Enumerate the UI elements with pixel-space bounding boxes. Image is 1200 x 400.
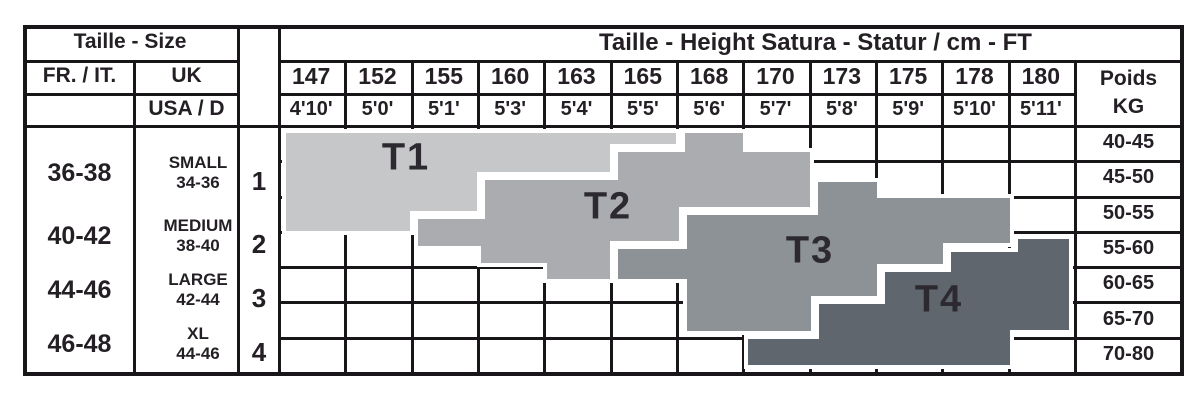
- band-t2-label: T2: [584, 186, 632, 229]
- weight-kg-cell: 45-50: [1077, 160, 1180, 195]
- height-ft-cell: 5'7': [742, 93, 808, 125]
- poids-label: Poids: [1100, 65, 1157, 92]
- height-cm-cell: 170: [742, 60, 808, 93]
- fr-it-column-header: FR. / IT.: [26, 60, 133, 93]
- size-fr-it-value: 40-42: [26, 213, 133, 259]
- height-ft-header-row: 4'10'5'0'5'1'5'3'5'4'5'5'5'6'5'7'5'8'5'9…: [278, 93, 1074, 125]
- size-usa-d-label: 44-46: [176, 344, 219, 364]
- height-ft-cell: 5'10': [941, 93, 1007, 125]
- size-uk-label: XL: [187, 324, 209, 344]
- size-row: 40-42MEDIUM38-402: [23, 213, 278, 259]
- height-ft-cell: 5'4': [543, 93, 609, 125]
- height-cm-cell: 165: [610, 60, 676, 93]
- poids-kg-column-header: Poids KG: [1077, 60, 1180, 125]
- size-chart-page: { "page": { "background": "#ffffff", "li…: [0, 0, 1200, 400]
- size-index-number: 4: [237, 329, 281, 375]
- height-ft-cell: 5'5': [610, 93, 676, 125]
- height-cm-cell: 180: [1008, 60, 1074, 93]
- size-index-number: 3: [237, 275, 281, 321]
- size-fr-it-value: 46-48: [26, 321, 133, 367]
- weight-kg-cell: 40-45: [1077, 125, 1180, 160]
- size-usa-d-label: 38-40: [176, 236, 219, 256]
- height-cm-cell: 173: [809, 60, 875, 93]
- height-ft-cell: 5'11': [1008, 93, 1074, 125]
- height-ft-cell: 5'3': [477, 93, 543, 125]
- height-section-title: Taille - Height Satura - Statur / cm - F…: [281, 25, 1180, 60]
- height-cm-cell: 152: [344, 60, 410, 93]
- weight-kg-cell: 60-65: [1077, 266, 1180, 301]
- usa-d-column-header: USA / D: [136, 93, 237, 125]
- band-t1-label: T1: [382, 137, 430, 180]
- height-ft-cell: 5'8': [809, 93, 875, 125]
- size-uk-label: MEDIUM: [164, 216, 233, 236]
- size-index-number: 2: [237, 221, 281, 267]
- height-cm-cell: 160: [477, 60, 543, 93]
- size-fr-it-value: 44-46: [26, 267, 133, 313]
- height-cm-cell: 175: [875, 60, 941, 93]
- size-usa-d-label: 42-44: [176, 290, 219, 310]
- height-cm-cell: 155: [411, 60, 477, 93]
- height-cm-cell: 168: [676, 60, 742, 93]
- size-uk-label: LARGE: [168, 270, 228, 290]
- weight-kg-column: 40-4545-5050-5555-6060-6565-7070-80: [1077, 125, 1180, 372]
- size-section-title: Taille - Size: [23, 25, 237, 60]
- size-index-number: 1: [237, 158, 281, 204]
- height-cm-cell: 147: [278, 60, 344, 93]
- uk-column-header: UK: [136, 60, 237, 93]
- height-ft-cell: 5'0': [344, 93, 410, 125]
- band-t4-label: T4: [915, 279, 963, 322]
- height-ft-cell: 4'10': [278, 93, 344, 125]
- size-row: 36-38SMALL34-361: [23, 150, 278, 196]
- height-cm-cell: 178: [941, 60, 1007, 93]
- size-fr-it-value: 36-38: [26, 150, 133, 196]
- height-cm-cell: 163: [543, 60, 609, 93]
- size-row: 44-46LARGE42-443: [23, 267, 278, 313]
- height-ft-cell: 5'1': [411, 93, 477, 125]
- weight-kg-cell: 55-60: [1077, 231, 1180, 266]
- kg-label: KG: [1113, 93, 1145, 120]
- band-t3-label: T3: [786, 230, 834, 273]
- size-uk-label: SMALL: [169, 153, 228, 173]
- height-ft-cell: 5'6': [676, 93, 742, 125]
- weight-kg-cell: 70-80: [1077, 337, 1180, 372]
- weight-kg-cell: 50-55: [1077, 196, 1180, 231]
- height-ft-cell: 5'9': [875, 93, 941, 125]
- size-row: 46-48XL44-464: [23, 321, 278, 367]
- height-cm-header-row: 147152155160163165168170173175178180: [278, 60, 1074, 93]
- size-usa-d-label: 34-36: [176, 173, 219, 193]
- weight-kg-cell: 65-70: [1077, 301, 1180, 336]
